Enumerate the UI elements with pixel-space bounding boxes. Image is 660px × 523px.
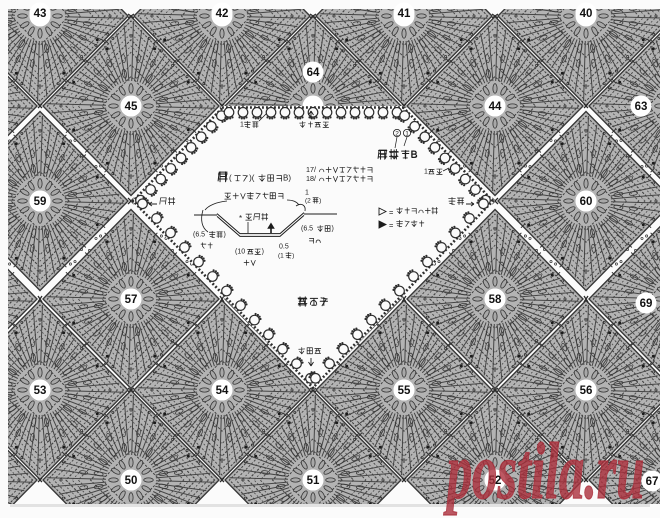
svg-text:B): B) <box>283 174 291 183</box>
svg-text:(10: (10 <box>235 249 245 256</box>
svg-text:56: 56 <box>580 385 593 397</box>
svg-text:64: 64 <box>307 67 320 79</box>
svg-text:44: 44 <box>489 101 502 113</box>
svg-text:(: ( <box>229 174 232 183</box>
svg-text:43: 43 <box>34 8 47 20</box>
svg-text:17/: 17/ <box>306 165 316 174</box>
svg-text:57: 57 <box>125 294 138 306</box>
svg-text:42: 42 <box>216 8 229 20</box>
svg-text:0.5: 0.5 <box>279 244 289 251</box>
svg-text:54: 54 <box>216 385 229 397</box>
svg-text:=: = <box>389 221 394 230</box>
svg-text:postila.ru: postila.ru <box>443 427 644 516</box>
svg-text:50: 50 <box>125 475 138 487</box>
svg-text:51: 51 <box>307 475 320 487</box>
svg-text:1: 1 <box>240 122 244 129</box>
svg-text:41: 41 <box>398 8 411 20</box>
svg-text:55: 55 <box>398 385 411 397</box>
svg-text:40: 40 <box>580 8 593 20</box>
svg-text:)(: )( <box>249 174 255 183</box>
svg-text:69: 69 <box>640 298 653 310</box>
svg-text:1: 1 <box>305 190 309 197</box>
svg-text:1: 1 <box>424 169 428 176</box>
svg-text:60: 60 <box>580 196 593 208</box>
svg-text:): ) <box>292 252 294 259</box>
svg-text:): ) <box>319 197 321 204</box>
svg-text:(1: (1 <box>278 252 284 259</box>
svg-text:(6.5: (6.5 <box>193 232 205 239</box>
svg-text:B: B <box>411 149 418 161</box>
svg-text:(2: (2 <box>305 197 311 204</box>
svg-text:58: 58 <box>489 294 502 306</box>
svg-text:): ) <box>332 226 334 233</box>
svg-text:*: * <box>239 214 242 223</box>
svg-text:59: 59 <box>34 196 47 208</box>
svg-text:): ) <box>224 232 226 239</box>
svg-text:53: 53 <box>34 385 47 397</box>
svg-text:45: 45 <box>125 101 138 113</box>
svg-text:): ) <box>262 249 264 256</box>
svg-text:2: 2 <box>395 131 399 138</box>
svg-text:1: 1 <box>405 131 409 138</box>
svg-text:(6.5: (6.5 <box>301 226 313 233</box>
svg-text:18/: 18/ <box>306 174 316 183</box>
svg-text:63: 63 <box>635 101 648 113</box>
svg-text:67: 67 <box>646 476 659 488</box>
svg-text:=: = <box>389 208 394 217</box>
